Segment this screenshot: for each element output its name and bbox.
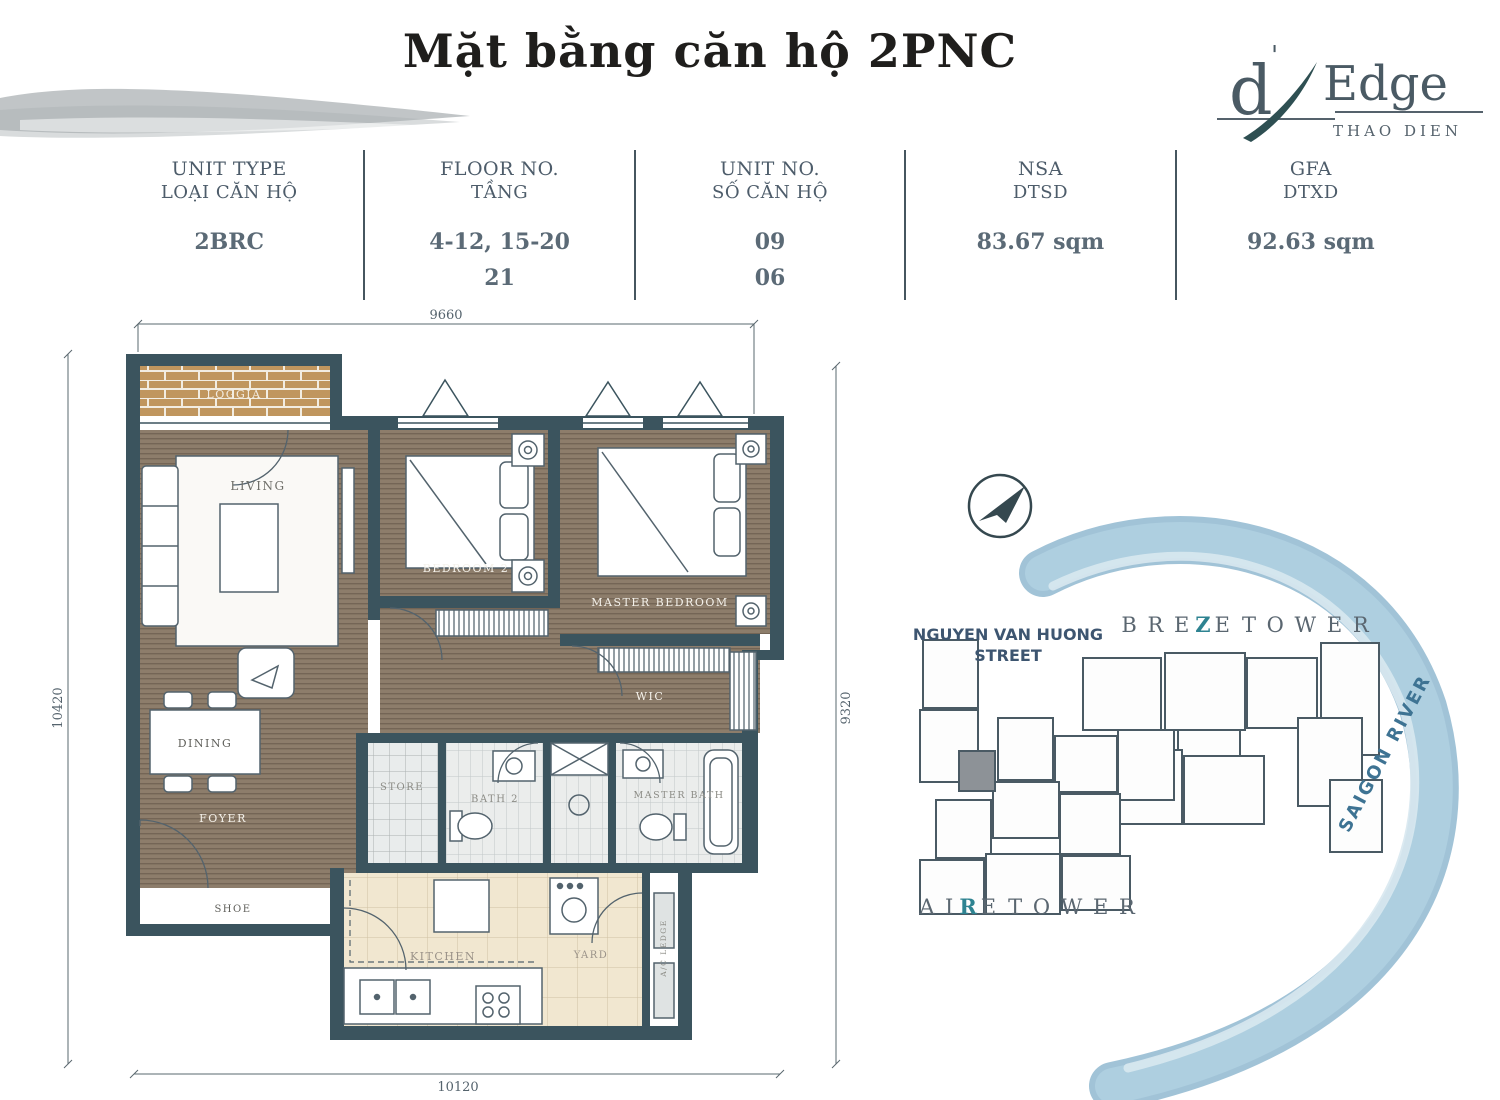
breeze-tower-label: B R EZET O W E R [1121, 612, 1370, 637]
spec-label-vi: LOẠI CĂN HỘ [95, 182, 363, 203]
highlighted-unit [959, 751, 995, 791]
spec-label-vi: TẦNG [365, 182, 633, 203]
spec-col-nsa: NSA DTSD 83.67 sqm [906, 150, 1176, 300]
spec-label-en: GFA [1177, 158, 1445, 180]
room-label-foyer: FOYER [199, 812, 247, 825]
logo-d: d [1229, 52, 1273, 131]
aire-part3: T O W E R [1008, 895, 1137, 919]
spec-label-vi: SỐ CĂN HỘ [636, 182, 904, 203]
room-label-wic: WIC [636, 690, 665, 703]
room-label-master-bedroom: MASTER BEDROOM [591, 596, 728, 609]
spec-label-en: UNIT NO. [636, 158, 904, 180]
aire-tower-label: A IRET O W E R [918, 894, 1137, 919]
dim-top: 9660 [429, 308, 462, 323]
room-label-kitchen: KITCHEN [410, 950, 476, 963]
room-label-bedroom2: BEDROOM 2 [423, 562, 510, 575]
breeze-part1: B R E [1121, 613, 1191, 637]
room-label-dining: DINING [178, 737, 233, 750]
breeze-accent: Z [1195, 612, 1212, 637]
logo-edge: Edge [1323, 56, 1448, 112]
breeze-part3: T O W E R [1242, 613, 1371, 637]
brand-logo: d ' Edge THAO DIEN [1215, 16, 1485, 148]
dim-right: 9320 [839, 691, 854, 724]
page-title: Mặt bằng căn hộ 2PNC [0, 24, 1420, 78]
spec-table: UNIT TYPE LOẠI CĂN HỘ 2BRC FLOOR NO. TẦN… [95, 150, 1445, 300]
spec-value: 4-12, 15-20 [365, 229, 633, 255]
spec-label-en: UNIT TYPE [95, 158, 363, 180]
spec-col-unit-no: UNIT NO. SỐ CĂN HỘ 09 06 [636, 150, 906, 300]
spec-label-vi: DTXD [1177, 182, 1445, 203]
aire-part1: A I [918, 895, 955, 919]
logo-apostrophe: ' [1271, 41, 1278, 71]
spec-value: 92.63 sqm [1177, 229, 1445, 255]
room-label-loggia: LOGGIA [206, 388, 261, 401]
street-label-line2: STREET [974, 646, 1042, 665]
spec-label-en: NSA [906, 158, 1174, 180]
breeze-part2: E [1215, 613, 1232, 637]
logo-subtitle: THAO DIEN [1333, 122, 1462, 140]
spec-value: 21 [365, 265, 633, 291]
dim-bottom: 10120 [437, 1080, 478, 1095]
spec-value: 09 [636, 229, 904, 255]
dim-left: 10420 [51, 687, 66, 728]
spec-label-vi: DTSD [906, 182, 1174, 203]
spec-col-gfa: GFA DTXD 92.63 sqm [1177, 150, 1445, 300]
room-label-store: STORE [380, 782, 424, 793]
street-label-line1: NGUYEN VAN HUONG [913, 625, 1103, 644]
spec-value: 83.67 sqm [906, 229, 1174, 255]
room-label-bath2: BATH 2 [471, 794, 519, 805]
spec-label-en: FLOOR NO. [365, 158, 633, 180]
site-map: NGUYEN VAN HUONG STREET B R EZET O W E R… [878, 418, 1500, 1100]
compass-icon [969, 475, 1031, 537]
room-label-master-bath: MASTER BATH [634, 790, 725, 801]
room-label-shoe: SHOE [214, 904, 251, 915]
aire-part2: E [981, 895, 998, 919]
room-label-living: LIVING [230, 479, 285, 493]
spec-col-unit-type: UNIT TYPE LOẠI CĂN HỘ 2BRC [95, 150, 365, 300]
room-label-yard: YARD [573, 950, 609, 961]
floor-plan: 9660 10120 10420 9320 LOGGIA LIVING BEDR… [38, 308, 862, 1100]
spec-value: 06 [636, 265, 904, 291]
aire-accent: R [959, 894, 978, 919]
spec-col-floor-no: FLOOR NO. TẦNG 4-12, 15-20 21 [365, 150, 635, 300]
store-floor [368, 743, 438, 863]
room-label-ac-ledge: A/C LEDGE [659, 919, 668, 978]
spec-value: 2BRC [95, 229, 363, 255]
